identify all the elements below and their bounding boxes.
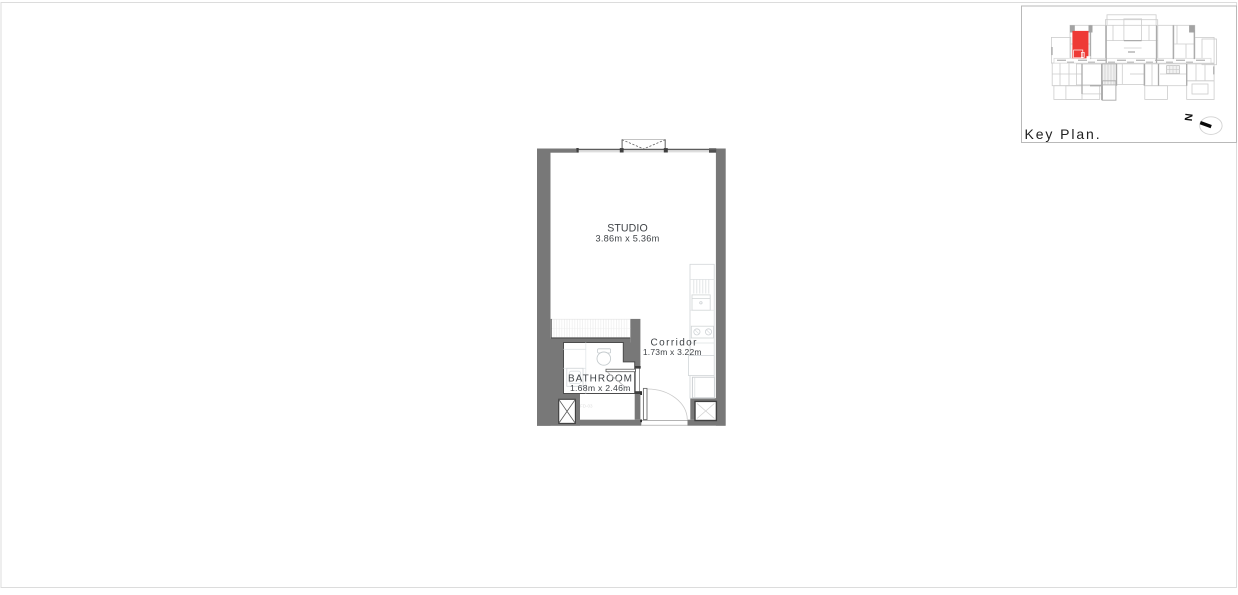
svg-text:N: N — [1182, 113, 1195, 122]
svg-text:3.86m x 5.36m: 3.86m x 5.36m — [595, 233, 659, 243]
svg-text:Key Plan.: Key Plan. — [1025, 126, 1102, 142]
svg-text:FD-03: FD-03 — [580, 404, 593, 409]
svg-text:1.73m x 3.22m: 1.73m x 3.22m — [643, 347, 702, 357]
